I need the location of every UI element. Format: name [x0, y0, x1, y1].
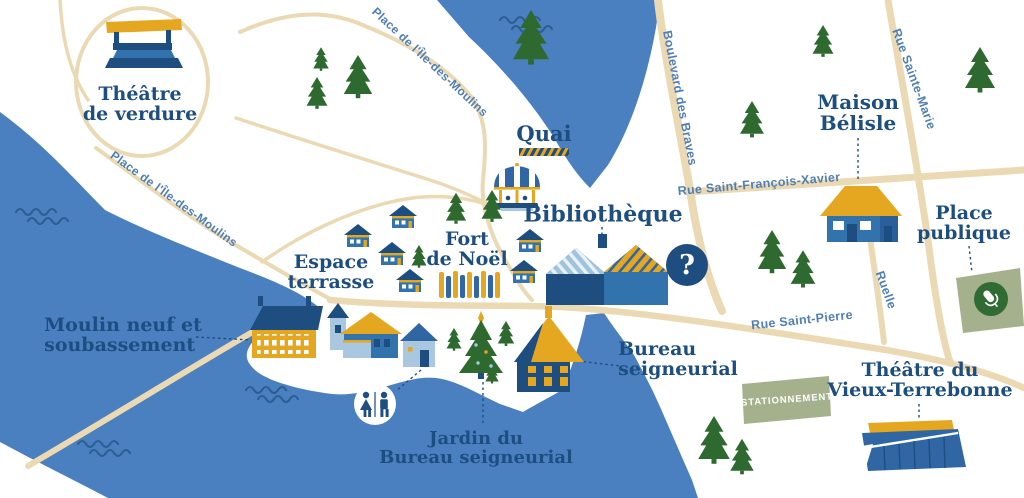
- map-canvas: ?: [0, 0, 1024, 498]
- barn-building-icon: [340, 312, 402, 358]
- quai-stripes-icon: [519, 148, 569, 156]
- market-stall-icon: [396, 269, 424, 292]
- christmas-tree-icon: [459, 311, 503, 379]
- carousel-icon: [494, 163, 540, 211]
- info-icon: ?: [666, 244, 708, 286]
- market-stall-icon: [378, 242, 406, 265]
- library-building-icon: [546, 234, 668, 305]
- parking-area-icon: [742, 376, 831, 424]
- info-question-mark: ?: [679, 250, 695, 281]
- market-stall-icon: [389, 205, 417, 228]
- microphone-icon: [974, 282, 1008, 316]
- market-stall-icon: [516, 229, 544, 252]
- theatre-vt-building-icon: [862, 420, 966, 471]
- belisle-house-icon: [820, 186, 902, 242]
- place-publique-area: [956, 268, 1024, 333]
- market-stall-icon: [344, 224, 372, 247]
- fort-noel-palisade-icon: [439, 271, 500, 298]
- shed-building-icon: [400, 323, 438, 367]
- restroom-icon: [354, 383, 396, 425]
- market-stall-icon: [510, 260, 538, 283]
- amphitheater-icon: [105, 19, 183, 68]
